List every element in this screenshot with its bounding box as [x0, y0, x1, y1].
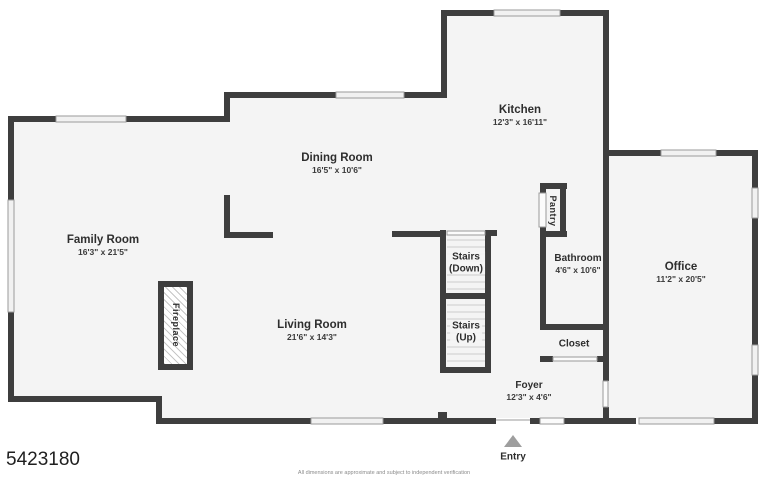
- room-sub: (Up): [452, 332, 480, 344]
- room-name: Entry: [500, 451, 526, 463]
- room-name: Stairs: [449, 252, 483, 264]
- listing-id: 5423180: [6, 449, 80, 471]
- room-dims: 12'3" x 4'6": [506, 392, 551, 402]
- room-dims: 21'6" x 14'3": [277, 333, 347, 343]
- room-dims: 12'3" x 16'11": [493, 118, 547, 128]
- room-name: Stairs: [452, 321, 480, 333]
- room-name: Living Room: [277, 319, 347, 332]
- room-label-kitchen: Kitchen 12'3" x 16'11": [493, 104, 547, 128]
- room-label-stairs-up: Stairs (Up): [450, 321, 482, 344]
- room-label-office: Office 11'2" x 20'5": [656, 261, 705, 285]
- room-label-stairs-down: Stairs (Down): [447, 252, 485, 275]
- room-dims: 11'2" x 20'5": [656, 275, 705, 285]
- room-dims: 4'6" x 10'6": [554, 265, 601, 275]
- room-label-pantry: Pantry: [548, 195, 558, 226]
- room-label-living-room: Living Room 21'6" x 14'3": [277, 319, 347, 343]
- room-name: Office: [656, 261, 705, 274]
- room-label-fireplace: Fireplace: [171, 303, 181, 347]
- room-name: Dining Room: [301, 152, 373, 165]
- room-sub: (Down): [449, 263, 483, 275]
- room-name: Kitchen: [493, 104, 547, 117]
- room-name: Bathroom: [554, 253, 601, 265]
- room-label-closet: Closet: [559, 338, 590, 350]
- entry-label: Entry: [500, 451, 526, 463]
- room-dims: 16'3" x 21'5": [67, 248, 139, 258]
- room-label-dining-room: Dining Room 16'5" x 10'6": [301, 152, 373, 176]
- room-dims: 16'5" x 10'6": [301, 166, 373, 176]
- disclaimer-text: All dimensions are approximate and subje…: [298, 470, 470, 476]
- room-name: Family Room: [67, 234, 139, 247]
- room-name: Fireplace: [171, 303, 181, 347]
- room-name: Pantry: [548, 195, 558, 226]
- room-name: Foyer: [506, 380, 551, 392]
- room-label-bathroom: Bathroom 4'6" x 10'6": [554, 253, 601, 275]
- room-label-foyer: Foyer 12'3" x 4'6": [506, 380, 551, 402]
- floor-plan: Family Room 16'3" x 21'5" Dining Room 16…: [0, 0, 768, 483]
- entry-arrow-icon: [504, 435, 522, 447]
- floor-areas: [14, 16, 752, 418]
- room-label-family-room: Family Room 16'3" x 21'5": [67, 234, 139, 258]
- room-name: Closet: [559, 338, 590, 350]
